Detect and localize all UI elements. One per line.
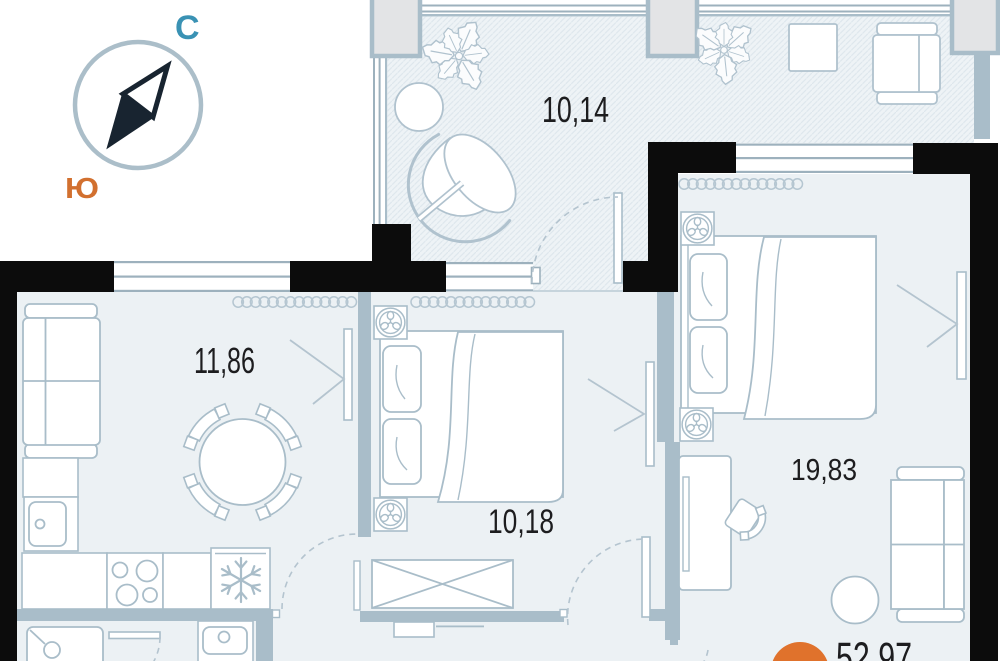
- svg-text:10,18: 10,18: [488, 503, 554, 541]
- svg-text:52,97: 52,97: [836, 634, 912, 661]
- svg-text:Ю: Ю: [65, 173, 99, 205]
- svg-text:С: С: [175, 9, 200, 47]
- svg-text:10,14: 10,14: [542, 89, 609, 130]
- svg-text:19,83: 19,83: [791, 452, 857, 487]
- svg-text:11,86: 11,86: [194, 340, 255, 381]
